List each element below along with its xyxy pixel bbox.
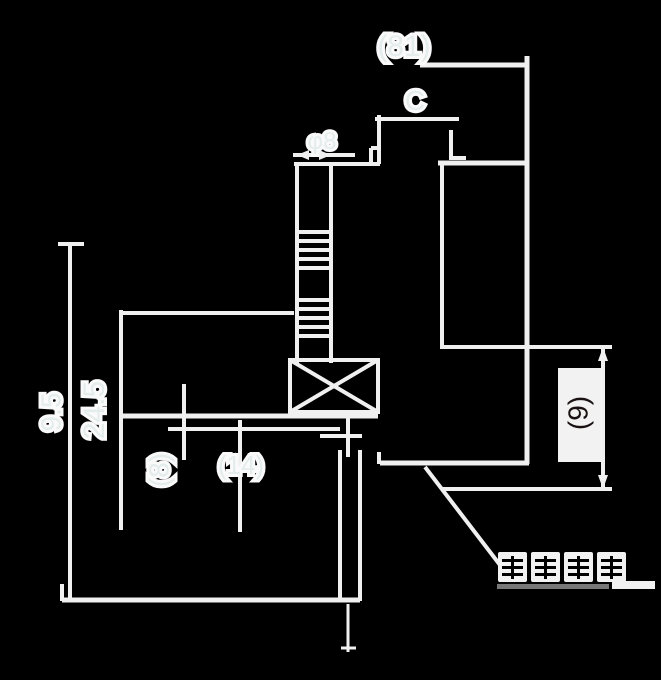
svg-text:24.5: 24.5 xyxy=(78,381,111,439)
svg-text:(14): (14) xyxy=(218,450,264,480)
svg-text:C: C xyxy=(405,85,425,116)
svg-text:(8): (8) xyxy=(143,453,174,487)
svg-text:(81): (81) xyxy=(377,30,430,63)
svg-text:9.5: 9.5 xyxy=(35,393,66,432)
svg-text:(9): (9) xyxy=(562,396,593,430)
svg-text:φ8: φ8 xyxy=(308,128,337,155)
